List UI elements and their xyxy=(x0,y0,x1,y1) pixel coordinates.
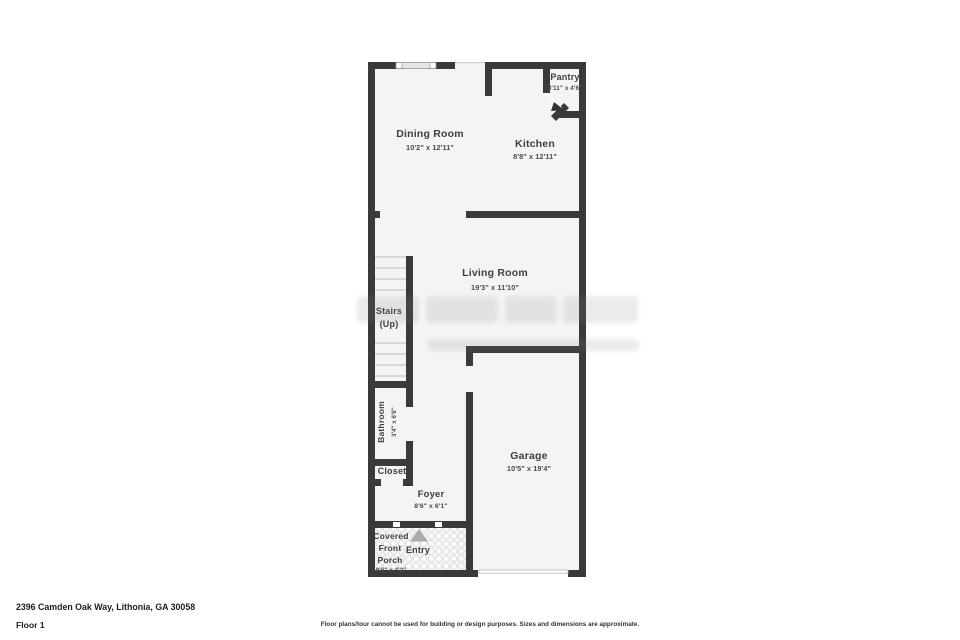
room-label-living: Living Room xyxy=(462,267,528,279)
wall-closet-bottom-left xyxy=(368,479,381,486)
room-dims-garage: 10'5" x 19'4" xyxy=(507,464,551,473)
room-label-porch-line3: Porch xyxy=(377,555,402,565)
floorplan-svg: Pantry 3'11" x 4'6" Dining Room 10'2" x … xyxy=(0,0,960,640)
room-label-porch-line2: Front xyxy=(379,543,402,553)
wall-closet-top xyxy=(368,459,413,466)
room-entry: Entry xyxy=(406,545,430,555)
room-foyer: Foyer 8'6" x 6'1" xyxy=(414,489,447,510)
room-label-garage: Garage xyxy=(510,450,547,462)
room-label-pantry: Pantry xyxy=(550,72,579,82)
garage-door xyxy=(479,570,568,573)
wall-bathroom-right-upper xyxy=(406,388,413,407)
footer-floor-label: Floor 1 xyxy=(16,620,45,630)
room-label-dining: Dining Room xyxy=(396,128,464,140)
footer-disclaimer: Floor plans/tour cannot be used for buil… xyxy=(321,621,640,628)
room-label-bathroom: Bathroom xyxy=(376,401,386,443)
room-dims-bathroom: 3'4" x 6'8" xyxy=(392,407,398,437)
wall-bathroom-top xyxy=(368,381,413,388)
room-label-porch-line1: Covered xyxy=(373,531,408,541)
wall-bathroom-right-lower xyxy=(406,441,413,462)
room-dims-dining: 10'2" x 12'11" xyxy=(406,143,454,152)
wall-dining-living-stub xyxy=(368,211,380,218)
wall-garage-left-upper xyxy=(466,353,473,366)
top-opening-line xyxy=(455,62,485,63)
wall-dining-kitchen-stub xyxy=(485,69,492,96)
wall-exterior-top-right xyxy=(485,62,586,69)
wall-kitchen-living-divider xyxy=(466,211,586,218)
room-dims-porch: 8'6" x 4'2" xyxy=(376,567,407,574)
room-closet: Closet xyxy=(378,466,407,476)
wall-garage-left-lower xyxy=(466,392,473,570)
room-label-entry: Entry xyxy=(406,545,430,555)
room-dims-pantry: 3'11" x 4'6" xyxy=(548,85,582,92)
wall-front-door xyxy=(368,521,466,528)
front-door-jamb-right xyxy=(435,522,442,527)
room-label-closet: Closet xyxy=(378,466,407,476)
front-door-jamb-left xyxy=(393,522,400,527)
room-dims-foyer: 8'6" x 6'1" xyxy=(414,503,447,510)
room-dims-kitchen: 8'8" x 12'11" xyxy=(513,152,557,161)
footer-address: 2396 Camden Oak Way, Lithonia, GA 30058 xyxy=(16,602,195,612)
room-label-foyer: Foyer xyxy=(418,489,445,500)
floorplan-page: Pantry 3'11" x 4'6" Dining Room 10'2" x … xyxy=(0,0,960,640)
window-top xyxy=(396,62,436,68)
room-dims-living: 19'3" x 11'10" xyxy=(471,283,519,292)
room-garage: Garage 10'5" x 19'4" xyxy=(507,450,551,473)
room-label-kitchen: Kitchen xyxy=(515,138,555,150)
wall-closet-bottom-right xyxy=(403,479,413,486)
room-kitchen: Kitchen 8'8" x 12'11" xyxy=(513,138,557,161)
wall-exterior-bottom-right xyxy=(568,570,586,577)
